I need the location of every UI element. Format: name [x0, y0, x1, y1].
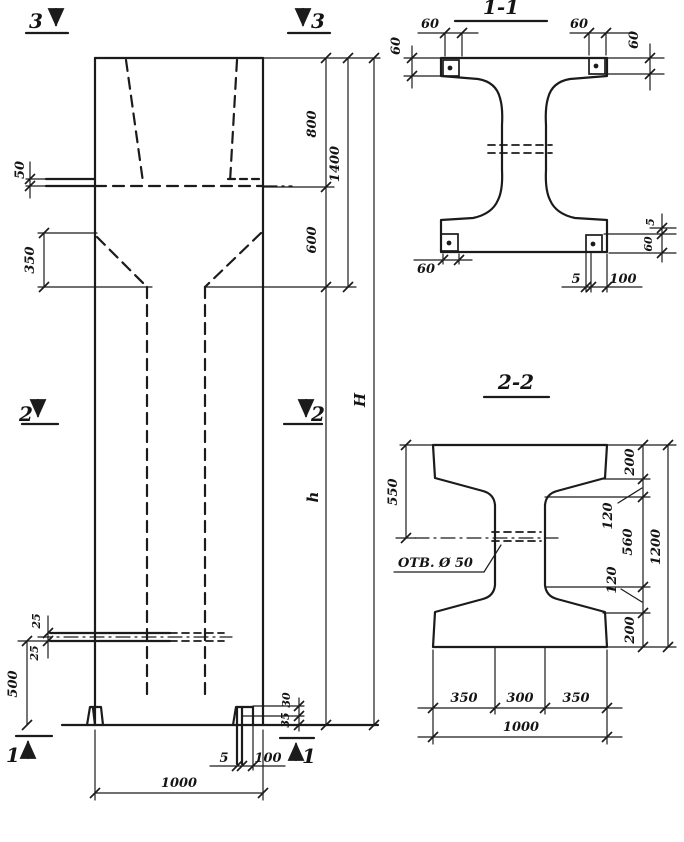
dim-taper-height: 350: [23, 246, 38, 273]
dim-total-height: H: [351, 392, 369, 408]
section-2-2-hole-callout: ОТВ. Ø 50: [394, 545, 501, 572]
section-2-2-view: 2-2 ОТВ. Ø 50: [386, 370, 676, 744]
dim-slot-upper: 25: [30, 613, 43, 629]
drawing-sheet: 50 350 800 600 1400 h H 25 25 500 30 35 …: [0, 0, 684, 842]
section-1-1-hole: [488, 145, 552, 153]
dim-base-height: 500: [6, 670, 21, 697]
dim-foot-lip-lower: 35: [279, 712, 292, 727]
hole-label: ОТВ. Ø 50: [398, 556, 473, 571]
section-marker-1-right: 1: [280, 738, 316, 768]
dim-2-2-haunch-top: 120: [601, 502, 616, 529]
section-marker-1-left: 1: [6, 736, 52, 767]
dim-1-1-plate-thickness: 5: [571, 272, 580, 287]
dim-1-1-top-right: 60: [570, 17, 588, 32]
dim-2-2-flange-top: 200: [623, 448, 638, 476]
dim-2-2-bottom-right: 350: [562, 691, 589, 706]
dim-2-2-bottom-total: 1000: [503, 720, 539, 735]
elevation-view: 50 350 800 600 1400 h H 25 25 500 30 35 …: [6, 9, 380, 800]
dim-1-1-right: 60: [627, 31, 642, 49]
dim-2-2-total-height: 1200: [649, 529, 664, 565]
section-marker-3-right: 3: [288, 9, 330, 33]
dim-2-2-bottom-left: 350: [450, 691, 477, 706]
section-2-2-title: 2-2: [497, 370, 534, 394]
dim-foot-width: 100: [254, 751, 281, 766]
dim-1-1-plate-width: 100: [609, 272, 636, 287]
dim-slot-lower: 25: [28, 645, 41, 661]
dim-shaft-height: h: [304, 492, 322, 503]
elevation-dim-lines: [22, 53, 380, 800]
marker-1-right-label: 1: [302, 744, 316, 768]
section-1-1-outline: [441, 58, 607, 252]
dim-2-2-haunch-bottom: 120: [605, 566, 620, 593]
section-2-2-outline: [433, 445, 607, 647]
dim-1-1-depth-right: 60: [642, 236, 655, 252]
dim-1-1-gap-right: 5: [644, 218, 657, 226]
marker-2-left-label: 2: [18, 402, 33, 426]
column-drawing: 50 350 800 600 1400 h H 25 25 500 30 35 …: [0, 0, 684, 842]
dim-foot-lip-upper: 30: [280, 692, 293, 708]
dim-2-2-bottom-middle: 300: [506, 691, 533, 706]
dim-foot-plate: 5: [219, 751, 228, 766]
dim-2-2-web-height: 560: [621, 528, 636, 555]
dim-head-total: 1400: [328, 146, 343, 182]
section-2-2-hole: [415, 532, 558, 541]
dim-console-depth: 50: [13, 161, 28, 179]
dim-head-lower: 600: [305, 226, 320, 253]
marker-3-left-label: 3: [29, 9, 43, 33]
dim-head-upper: 800: [305, 110, 320, 137]
section-marker-3-left: 3: [26, 9, 68, 33]
section-marker-2-left: 2: [18, 400, 58, 426]
dim-2-2-flange-bottom: 200: [623, 616, 638, 644]
section-marker-2-right: 2: [284, 400, 325, 426]
dim-width: 1000: [161, 776, 197, 791]
marker-1-left-label: 1: [6, 743, 20, 767]
elevation-outline: [26, 58, 378, 725]
section-2-2-dim-lines: [396, 440, 676, 744]
section-1-1-plates: [441, 58, 605, 252]
dim-1-1-top-left: 60: [421, 17, 439, 32]
marker-3-right-label: 3: [311, 9, 325, 33]
marker-2-right-label: 2: [310, 402, 325, 426]
section-1-1-view: 1-1: [389, 0, 676, 292]
section-1-1-title: 1-1: [483, 0, 519, 19]
dim-1-1-bottom-left: 60: [417, 262, 435, 277]
dim-1-1-left: 60: [389, 37, 404, 55]
dim-2-2-top-to-hole: 550: [386, 478, 401, 505]
